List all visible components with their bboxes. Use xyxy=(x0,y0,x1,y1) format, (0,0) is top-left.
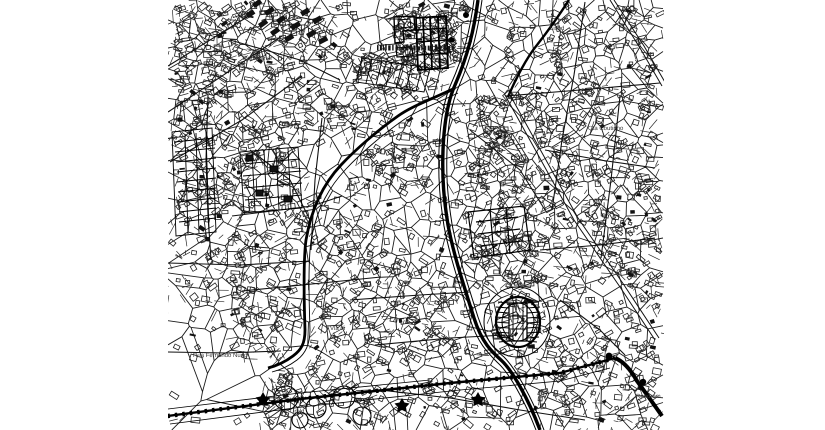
svg-text:Lisbd: Lisbd xyxy=(550,25,564,32)
svg-text:Rpodrom: Rpodrom xyxy=(636,393,661,400)
svg-text:Urbld: Urbld xyxy=(290,408,304,415)
svg-text:Qta Coutinho: Qta Coutinho xyxy=(588,125,624,132)
svg-text:Rua Fernando Nund: Rua Fernando Nund xyxy=(193,352,247,359)
svg-text:Rquinamar: Rquinamar xyxy=(243,55,272,62)
svg-text:P: P xyxy=(505,224,511,234)
svg-text:Vla di: Vla di xyxy=(330,325,345,332)
